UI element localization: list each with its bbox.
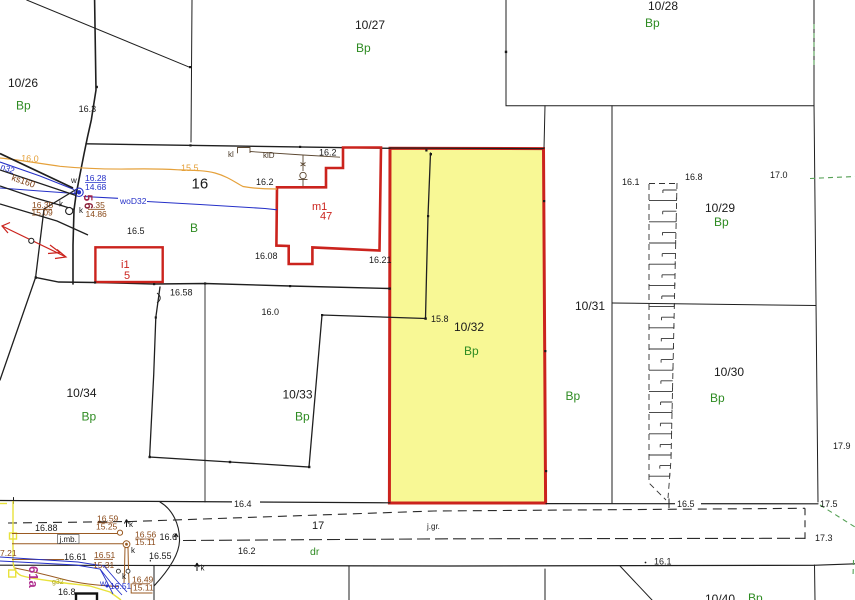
svg-text:17.0: 17.0 xyxy=(770,170,788,180)
svg-text:j.mb.: j.mb. xyxy=(59,535,77,544)
svg-text:10/27: 10/27 xyxy=(355,18,385,32)
svg-text:17.3: 17.3 xyxy=(815,533,833,543)
svg-text:16.4: 16.4 xyxy=(234,499,252,509)
svg-text:15.31: 15.31 xyxy=(93,560,115,570)
svg-text:kl: kl xyxy=(228,150,234,159)
svg-text:5: 5 xyxy=(81,195,95,202)
svg-text:14.68: 14.68 xyxy=(85,182,107,192)
svg-text:16.5: 16.5 xyxy=(677,499,695,509)
svg-text:Bp: Bp xyxy=(295,410,310,424)
svg-text:16.2: 16.2 xyxy=(319,148,337,158)
svg-text:Bp: Bp xyxy=(714,215,729,229)
svg-text:16.8: 16.8 xyxy=(685,172,703,182)
svg-text:16.08: 16.08 xyxy=(255,251,278,261)
svg-text:B: B xyxy=(190,221,198,235)
svg-text:10/29: 10/29 xyxy=(705,201,735,215)
svg-text:6: 6 xyxy=(82,203,96,210)
svg-text:16.8: 16.8 xyxy=(58,587,76,597)
svg-text:15.25: 15.25 xyxy=(96,522,118,532)
svg-text:16.0: 16.0 xyxy=(21,153,39,164)
svg-text:15.8: 15.8 xyxy=(431,314,449,324)
svg-text:14.86: 14.86 xyxy=(86,209,108,219)
svg-text:16: 16 xyxy=(192,176,209,193)
svg-text:16.5: 16.5 xyxy=(127,226,145,236)
svg-text:w: w xyxy=(70,176,77,185)
svg-text:10/33: 10/33 xyxy=(283,388,313,402)
svg-text:10/30: 10/30 xyxy=(714,365,744,379)
svg-text:g32: g32 xyxy=(52,579,64,586)
svg-text:16.0: 16.0 xyxy=(262,307,280,317)
svg-text:61a: 61a xyxy=(26,566,41,588)
svg-text:10/32: 10/32 xyxy=(454,320,484,334)
svg-text:Bp: Bp xyxy=(645,16,660,30)
svg-text:Bp: Bp xyxy=(356,41,371,55)
svg-text:16.2: 16.2 xyxy=(256,177,274,187)
svg-text:15.11: 15.11 xyxy=(135,537,156,547)
svg-text:Bp: Bp xyxy=(566,389,581,403)
svg-text:17.5: 17.5 xyxy=(820,499,838,509)
svg-text:dr: dr xyxy=(310,546,320,558)
svg-text:16.2: 16.2 xyxy=(238,546,256,556)
svg-text:16.88: 16.88 xyxy=(35,523,58,533)
svg-text:10/31: 10/31 xyxy=(575,299,605,313)
svg-text:16.6: 16.6 xyxy=(160,532,178,542)
svg-text:16.1: 16.1 xyxy=(622,177,640,187)
svg-text:woD32: woD32 xyxy=(119,196,147,206)
svg-text:47: 47 xyxy=(320,211,332,223)
svg-text:10/28: 10/28 xyxy=(648,0,678,13)
svg-text:j.gr.: j.gr. xyxy=(426,522,440,531)
svg-text:klD: klD xyxy=(263,151,275,160)
svg-text:17.9: 17.9 xyxy=(833,441,851,451)
svg-text:Bp: Bp xyxy=(748,591,763,600)
svg-text:16.58: 16.58 xyxy=(170,288,193,298)
svg-text:16.51: 16.51 xyxy=(110,581,132,591)
svg-text:16.1: 16.1 xyxy=(654,557,672,567)
svg-text:Bp: Bp xyxy=(710,391,725,405)
svg-text:7.21: 7.21 xyxy=(0,548,17,558)
svg-text:5: 5 xyxy=(124,270,130,282)
svg-text:15.09: 15.09 xyxy=(32,208,54,218)
svg-text:15.11: 15.11 xyxy=(133,583,154,593)
svg-text:Bp: Bp xyxy=(464,344,479,358)
svg-text:16.55: 16.55 xyxy=(149,551,172,561)
svg-text:w: w xyxy=(99,578,107,588)
svg-text:10/26: 10/26 xyxy=(8,76,38,90)
svg-text:16.21: 16.21 xyxy=(369,255,392,265)
svg-text:Bp: Bp xyxy=(82,410,97,424)
svg-text:16.51: 16.51 xyxy=(94,550,116,560)
svg-text:10/34: 10/34 xyxy=(67,386,97,400)
svg-text:Bp: Bp xyxy=(16,99,31,113)
svg-text:16.3: 16.3 xyxy=(79,104,97,114)
svg-text:10/40: 10/40 xyxy=(705,592,735,600)
svg-text:15.5: 15.5 xyxy=(181,163,199,173)
svg-text:16.61: 16.61 xyxy=(64,552,87,562)
svg-text:17: 17 xyxy=(312,520,324,532)
